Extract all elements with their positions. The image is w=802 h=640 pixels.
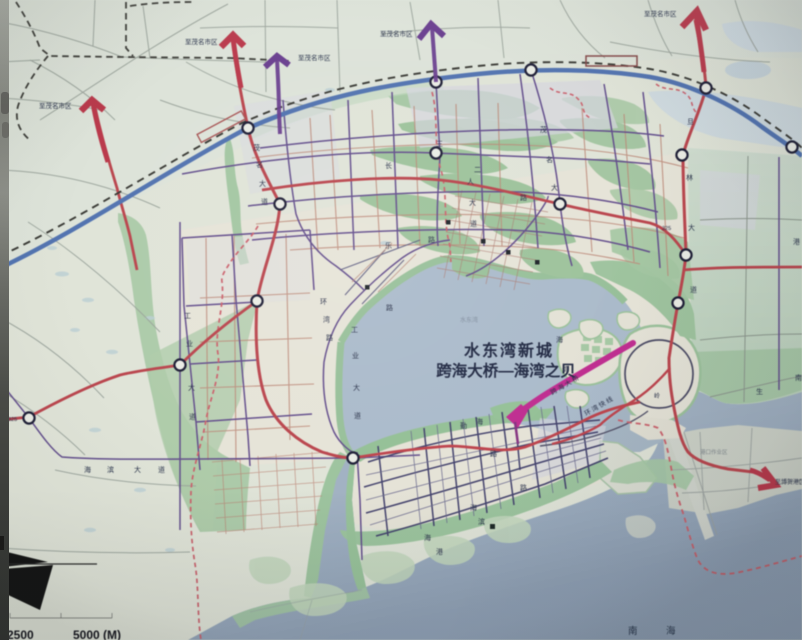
svg-text:道: 道	[690, 285, 697, 294]
svg-text:业: 业	[352, 351, 359, 360]
svg-text:湾: 湾	[562, 365, 569, 374]
svg-text:工: 工	[351, 327, 358, 334]
svg-text:大: 大	[469, 198, 476, 207]
svg-text:道: 道	[354, 411, 361, 420]
svg-text:湾: 湾	[323, 315, 330, 324]
svg-text:大: 大	[353, 383, 360, 392]
svg-text:至茂名市区: 至茂名市区	[185, 37, 218, 46]
svg-text:名: 名	[256, 160, 263, 169]
svg-text:路: 路	[326, 333, 333, 342]
svg-text:生: 生	[756, 387, 763, 396]
svg-text:道: 道	[261, 197, 268, 206]
svg-text:2500: 2500	[7, 628, 34, 640]
svg-text:道: 道	[470, 219, 477, 228]
svg-text:旦: 旦	[687, 118, 694, 126]
svg-text:海: 海	[666, 625, 676, 637]
svg-text:至茂名市区: 至茂名市区	[644, 9, 677, 18]
svg-text:路: 路	[386, 303, 393, 312]
svg-text:长: 长	[385, 161, 392, 170]
svg-text:海: 海	[424, 533, 431, 542]
svg-text:大: 大	[134, 465, 141, 474]
svg-text:岭: 岭	[654, 392, 660, 400]
svg-text:大: 大	[188, 383, 195, 392]
svg-text:海: 海	[470, 503, 477, 512]
svg-text:至茂名市区: 至茂名市区	[298, 53, 331, 62]
svg-text:5000 (M): 5000 (M)	[73, 628, 121, 640]
svg-text:环: 环	[320, 298, 327, 306]
svg-text:跨海大桥—海湾之贝: 跨海大桥—海湾之贝	[436, 361, 576, 380]
svg-text:至博贺港区: 至博贺港区	[775, 478, 802, 486]
svg-text:路: 路	[520, 193, 527, 202]
svg-text:勤: 勤	[460, 421, 467, 430]
svg-text:名: 名	[546, 155, 553, 164]
svg-text:二: 二	[474, 167, 481, 174]
svg-text:路: 路	[520, 483, 527, 492]
svg-text:海: 海	[476, 417, 483, 426]
svg-text:海: 海	[84, 465, 91, 474]
svg-text:港口作业区: 港口作业区	[700, 448, 728, 456]
svg-text:道: 道	[158, 465, 165, 474]
svg-text:水东湾新城: 水东湾新城	[464, 341, 554, 360]
svg-text:林: 林	[686, 173, 693, 182]
svg-text:325: 325	[8, 417, 17, 423]
svg-text:茂: 茂	[540, 125, 547, 134]
svg-text:南: 南	[628, 625, 638, 637]
svg-text:大: 大	[259, 179, 266, 188]
svg-text:大: 大	[551, 183, 558, 192]
svg-text:港: 港	[436, 547, 443, 556]
svg-text:325: 325	[662, 226, 671, 232]
svg-text:乐: 乐	[385, 241, 392, 250]
svg-text:水东湾: 水东湾	[460, 316, 478, 324]
svg-text:工: 工	[184, 313, 191, 320]
svg-text:至茂名市区: 至茂名市区	[380, 29, 413, 38]
svg-text:海: 海	[556, 335, 563, 344]
svg-text:至茂名市区: 至茂名市区	[39, 101, 72, 110]
svg-text:道: 道	[189, 412, 196, 421]
svg-text:路: 路	[490, 449, 497, 458]
svg-text:港: 港	[793, 237, 800, 246]
svg-text:三: 三	[436, 140, 443, 148]
svg-text:路: 路	[428, 235, 435, 244]
svg-text:大: 大	[688, 223, 695, 232]
svg-text:滨: 滨	[107, 465, 114, 474]
svg-text:业: 业	[186, 339, 193, 348]
svg-text:南: 南	[795, 373, 802, 382]
svg-text:人: 人	[467, 178, 474, 186]
svg-text:茂: 茂	[253, 143, 260, 152]
svg-text:滨: 滨	[478, 517, 485, 526]
